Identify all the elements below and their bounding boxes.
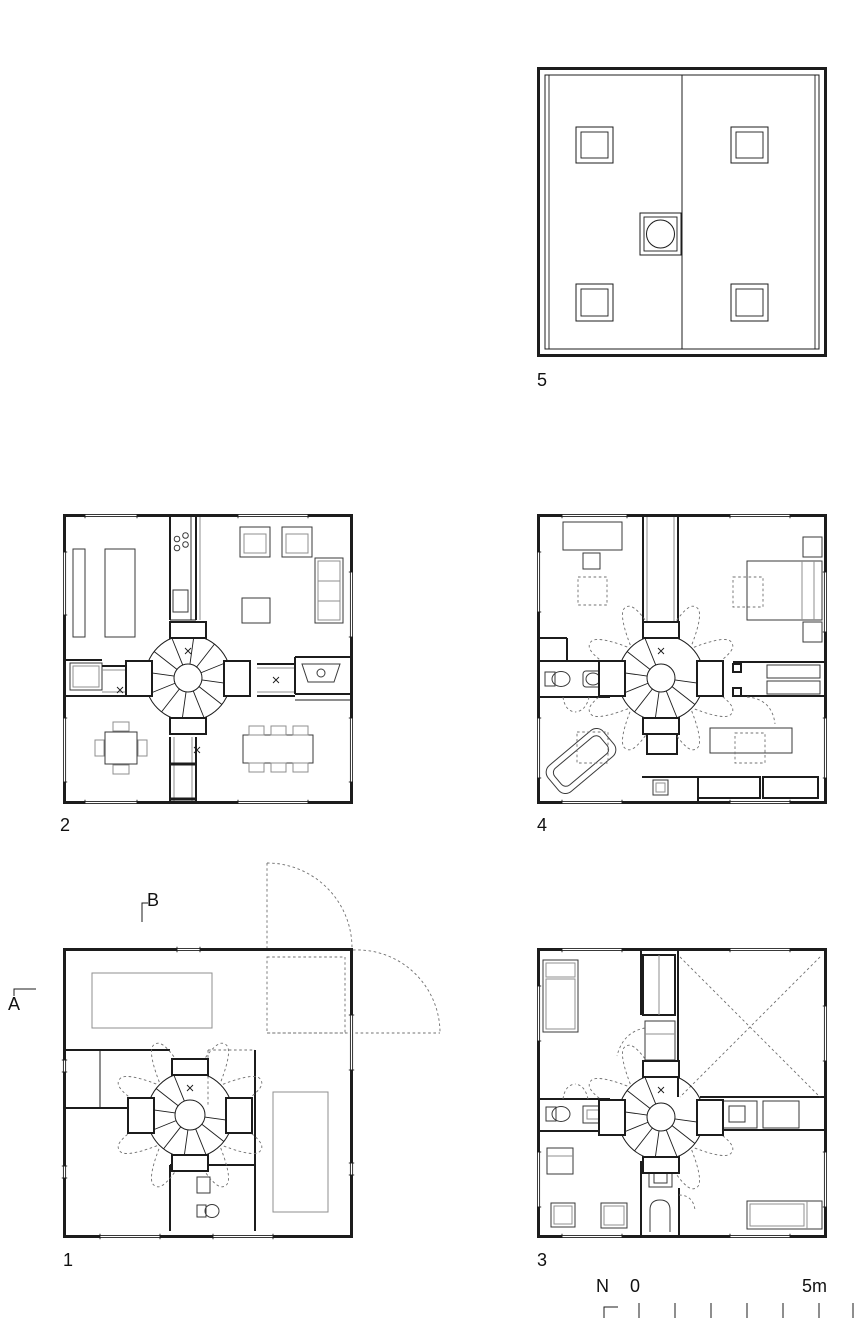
double-door-swing xyxy=(563,697,589,712)
toilet xyxy=(205,1205,219,1218)
exterior-wall xyxy=(539,516,826,803)
scale-ticks xyxy=(639,1303,853,1318)
scale-bar xyxy=(595,1300,857,1318)
nightstand xyxy=(803,622,822,642)
bed xyxy=(747,561,822,620)
skylight xyxy=(576,284,613,321)
wc xyxy=(649,1166,695,1232)
spiral-stair xyxy=(589,1045,733,1189)
living-room xyxy=(240,527,343,623)
scale-zero-label: 0 xyxy=(630,1277,640,1295)
kitchen xyxy=(73,517,200,637)
wardrobe xyxy=(617,955,675,1060)
exterior-wall xyxy=(539,950,826,1237)
bathroom xyxy=(197,1177,219,1218)
desk xyxy=(563,522,622,550)
rug-dashed xyxy=(735,733,765,763)
breakfast-table xyxy=(105,732,137,764)
double-door-swing xyxy=(563,1084,588,1099)
door-swing xyxy=(617,1028,645,1056)
plan-label-4: 4 xyxy=(537,816,547,834)
cooktop xyxy=(174,533,188,551)
nightstand xyxy=(803,537,822,557)
storage-bench xyxy=(273,1092,328,1212)
interior-walls xyxy=(540,951,824,1235)
exterior-wall xyxy=(65,516,352,803)
north-symbol xyxy=(604,1307,618,1318)
floor-plan-2-living xyxy=(63,514,353,804)
coffee-table xyxy=(242,598,270,623)
plan-label-3: 3 xyxy=(537,1251,547,1269)
skylight xyxy=(576,127,613,163)
rug-dashed xyxy=(578,577,607,605)
section-label-b: B xyxy=(147,891,159,909)
plan-label-1: 1 xyxy=(63,1251,73,1269)
floor-plan-3-bedrooms xyxy=(537,948,827,1238)
work-table xyxy=(92,973,212,1028)
architectural-plan-sheet: 5 2 4 1 3 B A N 0 5m xyxy=(0,0,858,1318)
floor-plan-4-bedrooms xyxy=(537,514,827,804)
bed-top-left xyxy=(543,960,578,1032)
cabinet xyxy=(70,663,102,690)
closets-right xyxy=(721,1101,799,1128)
wc-basin xyxy=(302,664,340,682)
kitchen-counter xyxy=(73,549,85,637)
floor-plan-5-roof xyxy=(537,67,827,357)
sink xyxy=(197,1177,210,1193)
door-mark xyxy=(273,677,279,683)
stair-roof-lantern xyxy=(640,213,681,255)
kitchen-sink xyxy=(173,590,188,612)
skylight xyxy=(731,127,768,163)
floor-plan-1-ground xyxy=(0,855,458,1250)
chair xyxy=(583,553,600,569)
bathroom xyxy=(545,671,603,712)
interior-walls xyxy=(66,657,350,801)
skylight xyxy=(731,284,768,321)
section-label-a: A xyxy=(8,995,20,1013)
door-swing xyxy=(679,1195,695,1210)
plan-label-5: 5 xyxy=(537,371,547,389)
bath-room-lower xyxy=(542,725,619,797)
scale-max-label: 5m xyxy=(802,1277,827,1295)
toilet xyxy=(650,1200,670,1232)
toilet xyxy=(552,1107,570,1122)
lower-left-room xyxy=(547,1148,627,1228)
plan-label-2: 2 xyxy=(60,816,70,834)
bed-bottom-right xyxy=(747,1201,822,1229)
lower-right-room xyxy=(653,728,792,795)
rug-dashed xyxy=(733,577,763,607)
void-over-living xyxy=(680,957,820,1097)
interior-walls xyxy=(66,1050,255,1231)
north-label: N xyxy=(596,1277,609,1295)
bedroom xyxy=(733,537,822,642)
kitchen-island xyxy=(105,549,135,637)
spiral-stair xyxy=(126,622,250,734)
door-swing xyxy=(747,697,775,724)
bathtub xyxy=(542,725,619,797)
study xyxy=(563,522,622,605)
table xyxy=(710,728,792,753)
dining-table xyxy=(243,735,313,763)
bathroom xyxy=(546,1084,603,1123)
sofa xyxy=(315,558,343,623)
